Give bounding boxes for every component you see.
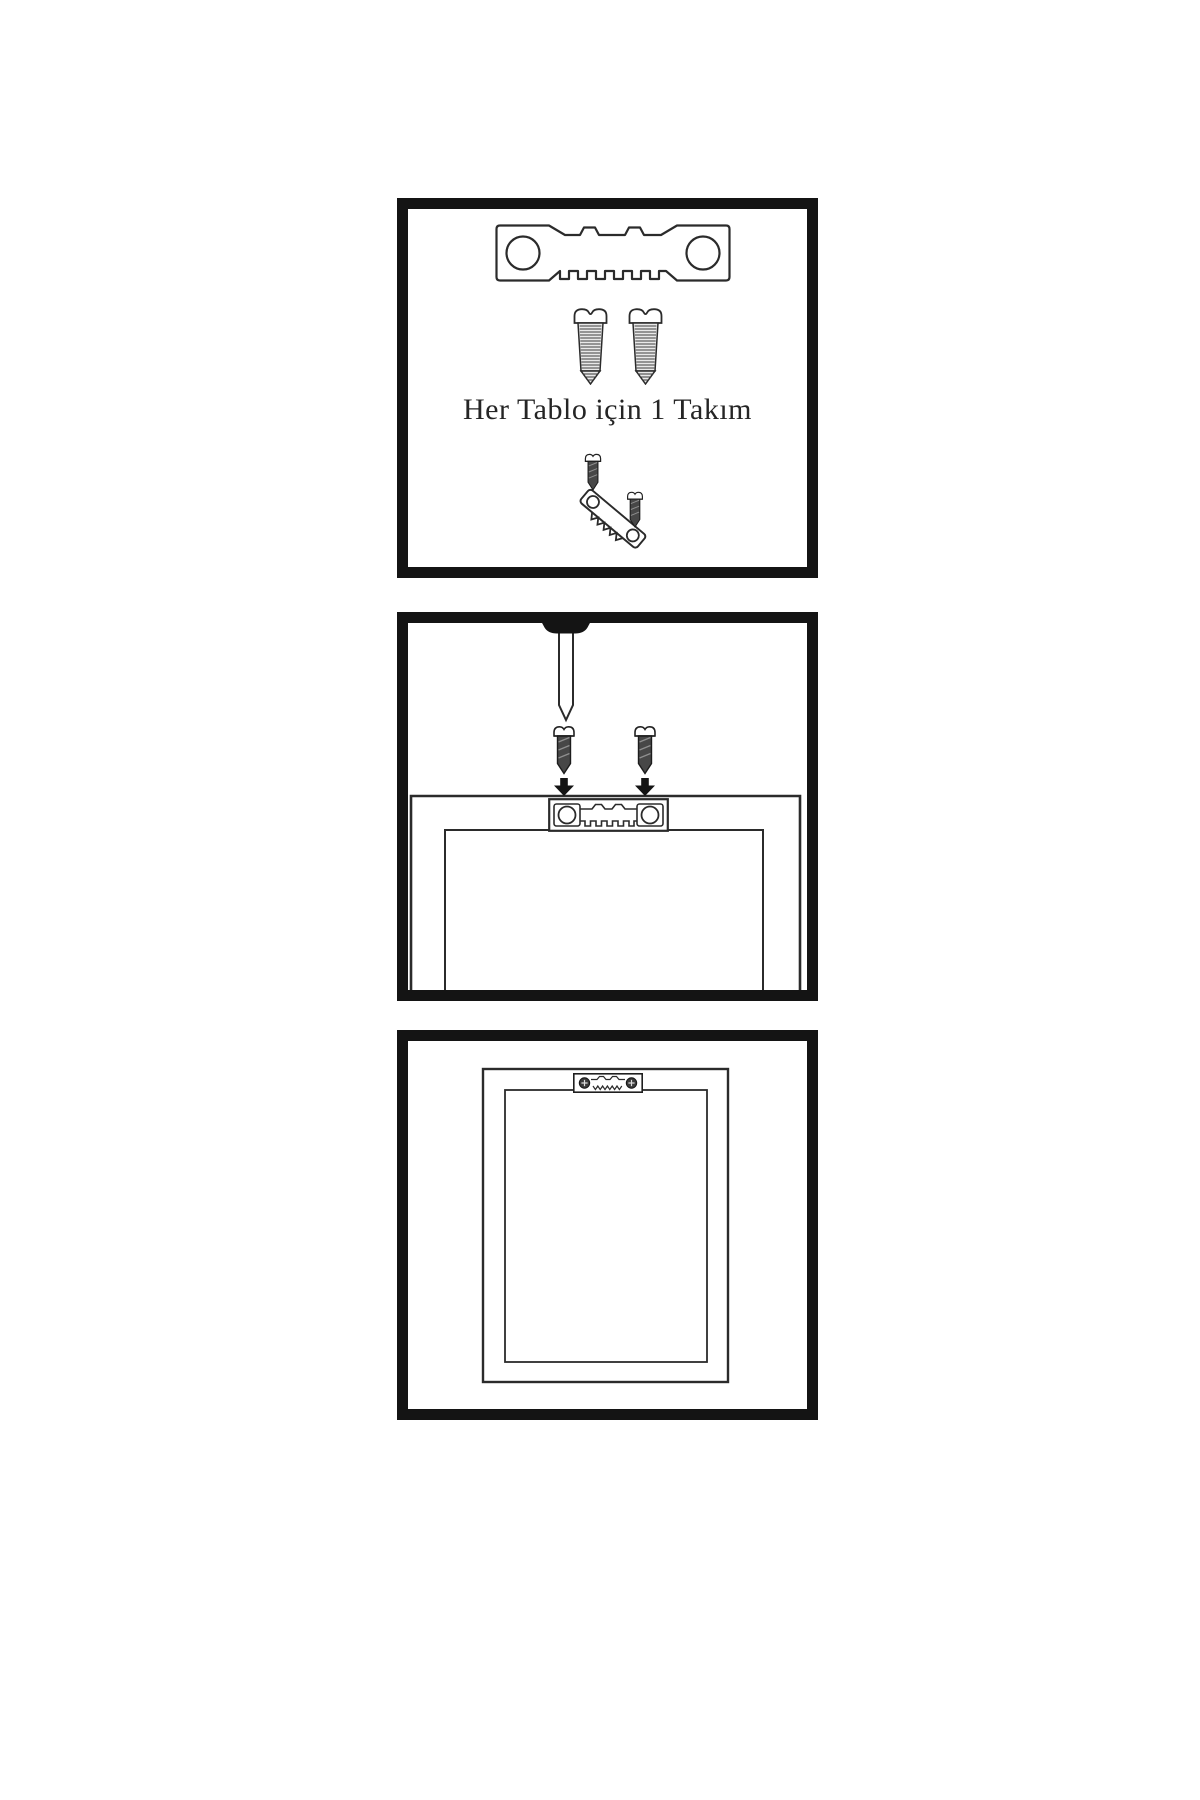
screwdriver-icon: [541, 623, 591, 720]
screw-icon: [572, 307, 609, 385]
dark-screw-icon: [635, 727, 655, 774]
down-arrow-icon: [554, 778, 574, 796]
step-3-panel: [397, 1030, 818, 1420]
sawtooth-hanger-icon: [495, 224, 731, 282]
dark-screw-icon: [554, 727, 574, 774]
step-1-panel: Her Tablo için 1 Takım: [397, 198, 818, 578]
tilted-hanger-assembly-icon: [575, 453, 653, 553]
frame-inner-outline: [505, 1090, 707, 1362]
kit-caption: Her Tablo için 1 Takım: [408, 393, 807, 427]
mounted-hanger-with-screws-icon: [574, 1074, 642, 1092]
step-3-illustration: [408, 1041, 807, 1409]
step-2-panel: [397, 612, 818, 1001]
step-2-illustration: [408, 623, 807, 990]
down-arrow-icon: [635, 778, 655, 796]
screw-icon: [627, 307, 664, 385]
dark-screw-icon: [585, 454, 600, 489]
frame-inner-outline: [445, 830, 763, 990]
mounted-hanger-icon: [549, 799, 668, 831]
instruction-sheet: Her Tablo için 1 Takım: [0, 0, 1200, 1800]
